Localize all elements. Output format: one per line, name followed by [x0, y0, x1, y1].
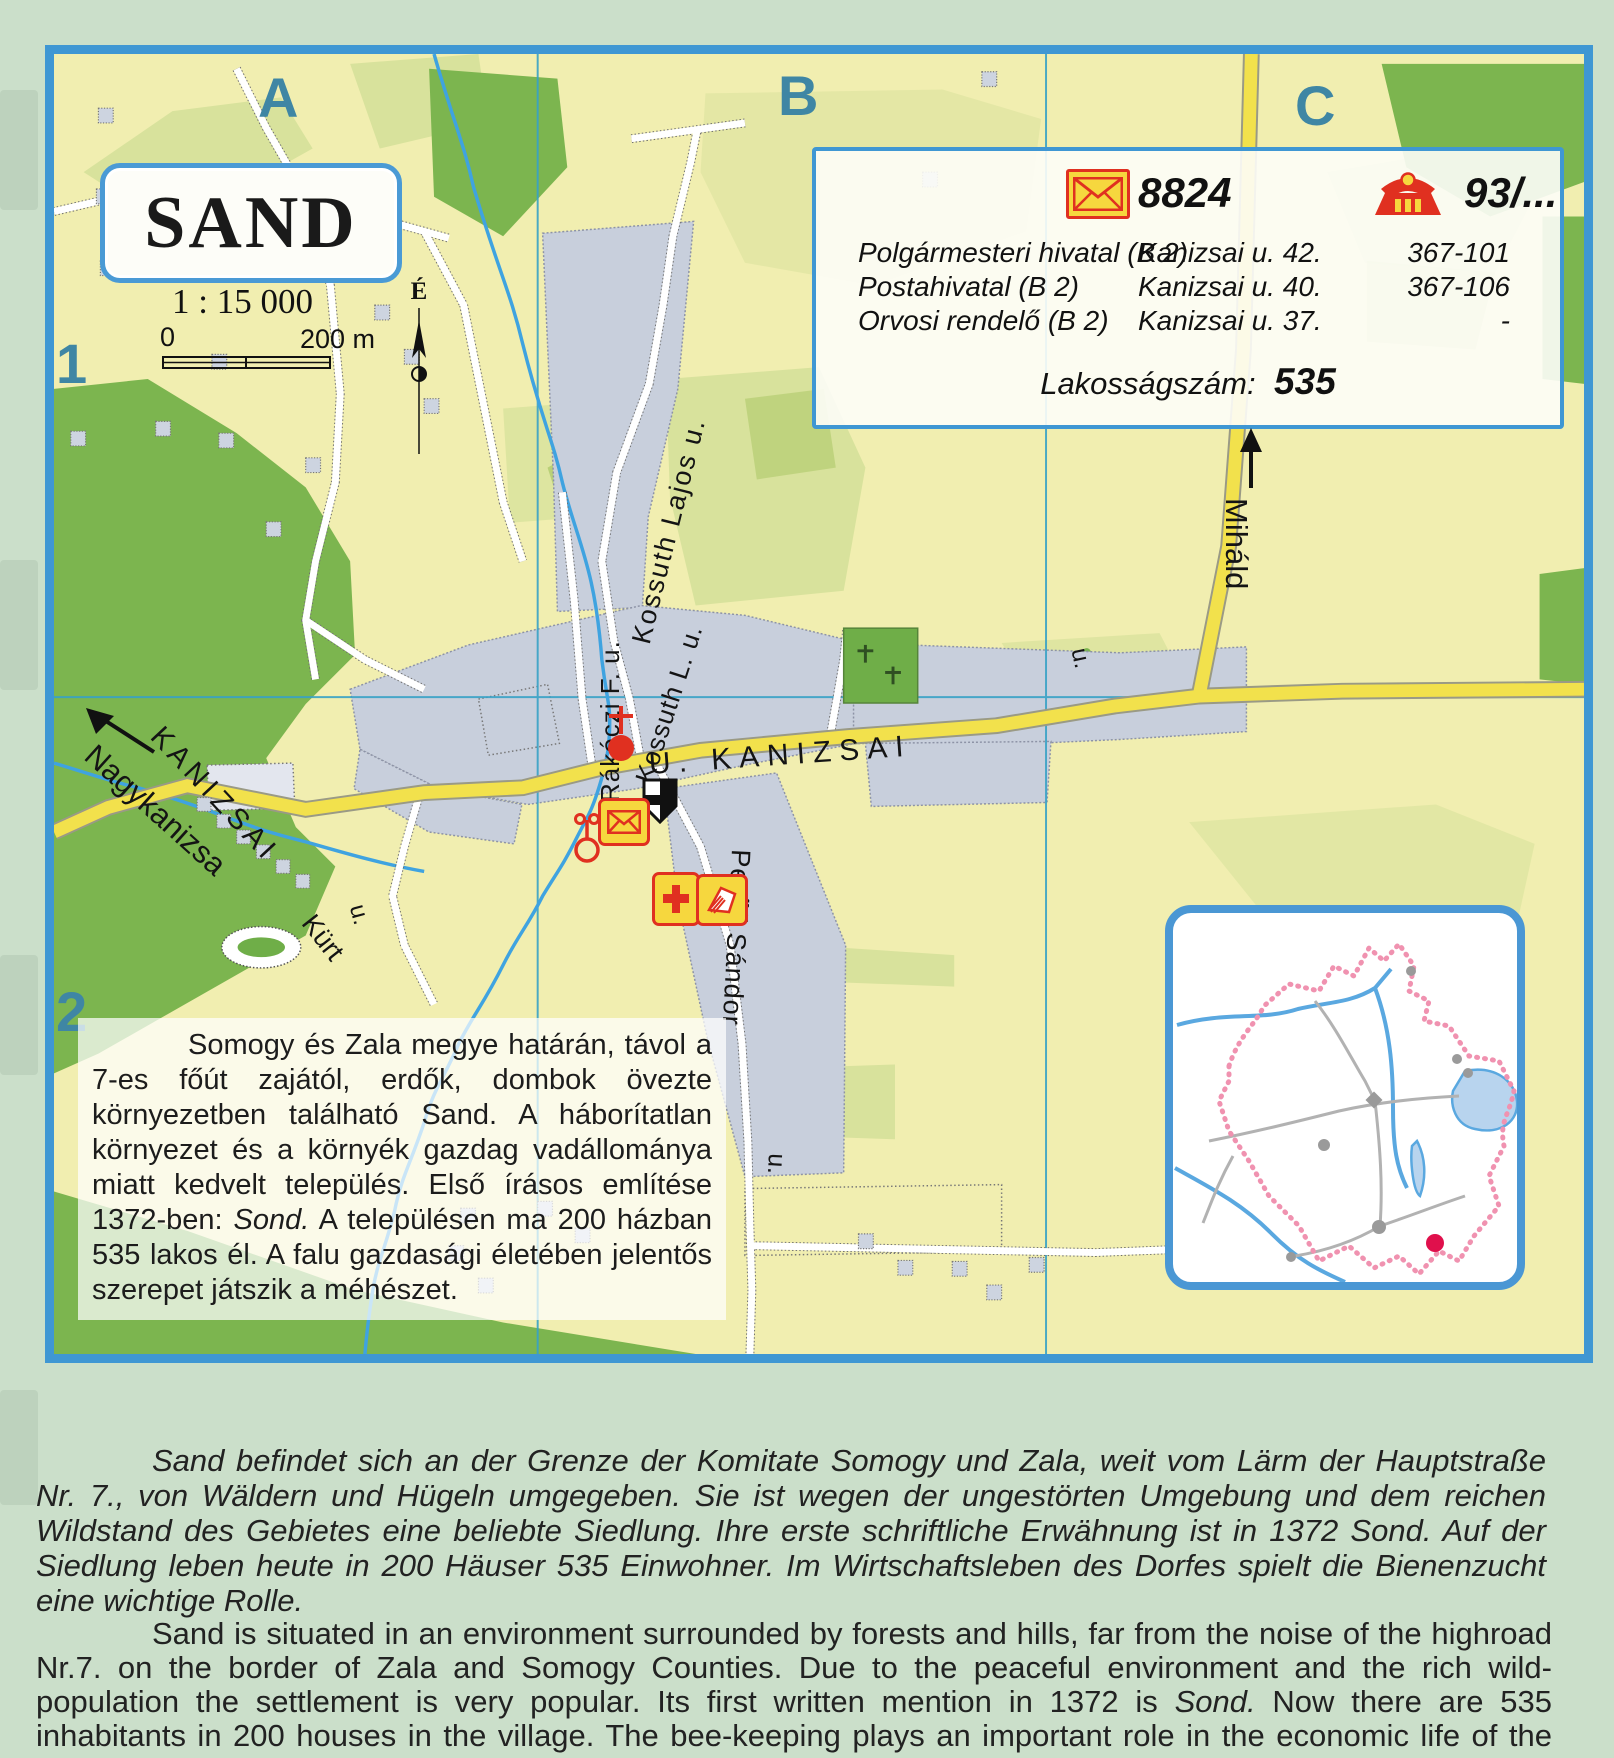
population-label: Lakosságszám:	[1040, 366, 1255, 401]
scalebar-end-label: 200 m	[300, 324, 375, 355]
population-value: 535	[1260, 361, 1336, 402]
binding-tab	[0, 560, 38, 690]
binding-tab	[0, 955, 38, 1075]
town-title-box: SAND	[100, 163, 402, 283]
phone-icon	[1371, 167, 1445, 222]
info-row: Orvosi rendelő (B 2) Kanizsai u. 37. -	[858, 305, 1518, 339]
grid-col-b: B	[778, 68, 818, 124]
arrow-icon	[1236, 426, 1266, 492]
poi-address: Kanizsai u. 37.	[1138, 305, 1322, 337]
county-inset-map	[1165, 905, 1525, 1290]
grid-row-1: 1	[56, 336, 87, 392]
town-title: SAND	[144, 181, 357, 266]
hungarian-description: Somogy és Zala megye határán, távol a 7-…	[78, 1018, 726, 1320]
grid-col-c: C	[1295, 78, 1335, 134]
scalebar-start-label: 0	[160, 322, 175, 353]
direction-label-mihald: Miháld	[1221, 498, 1252, 589]
poi-address: Kanizsai u. 40.	[1138, 271, 1322, 303]
hungarian-text: Somogy és Zala megye határán, távol a 7-…	[92, 1028, 712, 1308]
post-office-icon	[598, 798, 650, 846]
book-icon	[696, 874, 748, 926]
poi-name: Orvosi rendelő (B 2)	[858, 305, 1109, 337]
poi-name: Postahivatal (B 2)	[858, 271, 1079, 303]
envelope-icon	[1066, 169, 1130, 219]
inset-artwork	[1173, 913, 1517, 1282]
compass-north-icon: É	[406, 278, 432, 461]
german-description: Sand befindet sich an der Grenze der Kom…	[36, 1443, 1546, 1618]
poi-address: Kanizsai u. 42.	[1138, 237, 1322, 269]
info-row: Postahivatal (B 2) Kanizsai u. 40. 367-1…	[858, 271, 1518, 305]
binding-tab	[0, 90, 38, 210]
info-row: Polgármesteri hivatal (B 2) Kanizsai u. …	[858, 237, 1518, 271]
church-dot-cross-icon	[606, 704, 636, 775]
phone-code: 93/...	[1464, 169, 1557, 217]
well-icon	[572, 812, 602, 869]
binding-tab	[0, 1390, 38, 1505]
arrow-icon	[84, 702, 164, 758]
population-line: Lakosságszám: 535	[816, 361, 1560, 403]
scalebar	[162, 354, 332, 377]
poi-phone: 367-106	[1407, 271, 1510, 303]
map-page: A B C 1 2 SAND 1 : 15 000 0 200 m É	[0, 0, 1614, 1758]
town-map: A B C 1 2 SAND 1 : 15 000 0 200 m É	[45, 45, 1593, 1363]
poi-phone: -	[1501, 305, 1510, 337]
sand-location-dot	[1426, 1234, 1444, 1252]
street-label-petofi-u: u.	[763, 1153, 789, 1175]
postal-code: 8824	[1138, 169, 1231, 217]
grid-col-a: A	[258, 70, 298, 126]
compass-north-label: É	[406, 278, 432, 306]
english-description: Sand is situated in an environment surro…	[36, 1617, 1552, 1758]
map-scale-ratio: 1 : 15 000	[172, 282, 313, 322]
red-cross-icon	[652, 872, 700, 926]
poi-phone: 367-101	[1407, 237, 1510, 269]
info-box: 8824 93/... Polgármesteri hivatal (B 2) …	[812, 147, 1564, 429]
